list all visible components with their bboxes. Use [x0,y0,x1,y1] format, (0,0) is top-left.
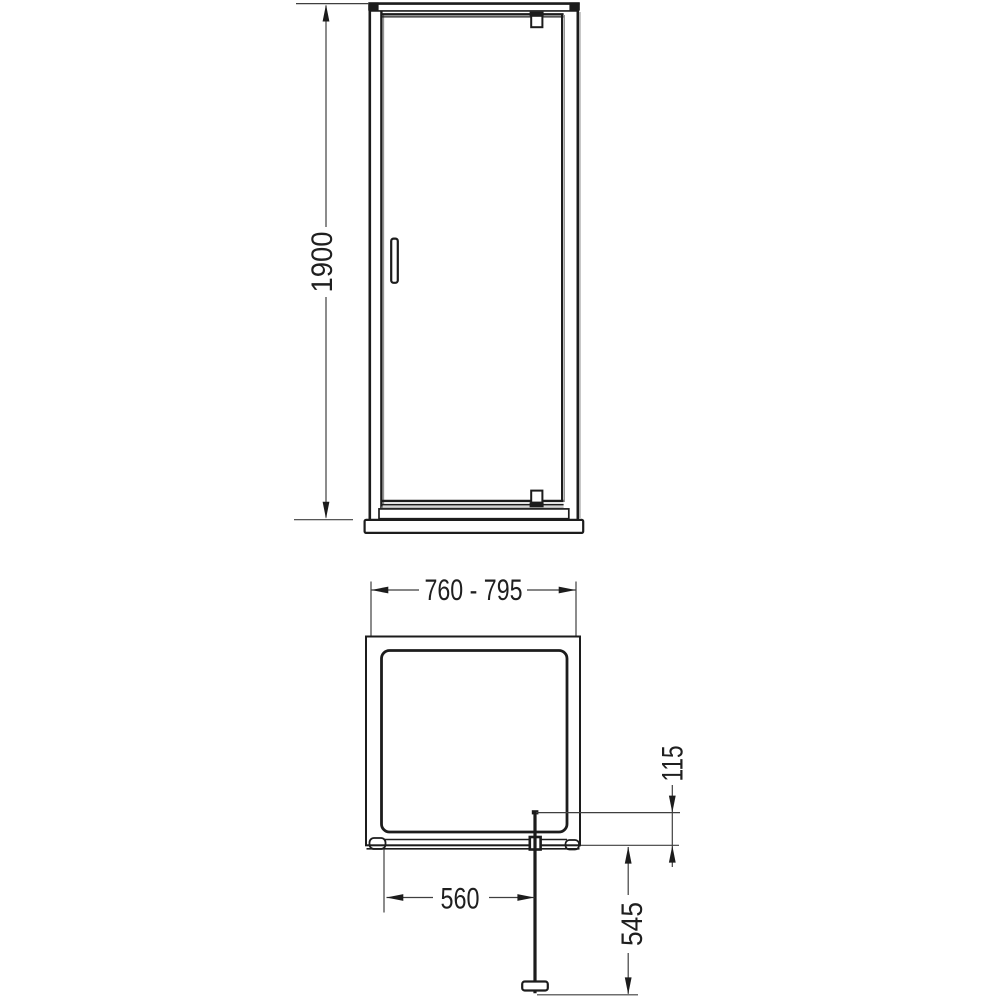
arrow-left [386,894,403,901]
dim-label-pivot-inset: 115 [657,746,690,782]
arrow-left [371,587,388,594]
door-handle [391,239,398,283]
drawing-canvas: 1900 760 - 795 115 [0,0,1000,1000]
shower-tray-elevation [365,520,584,533]
arrow-right [559,587,576,594]
arrow-down [669,796,676,813]
top-pivot-hinge [531,16,542,27]
dim-label-door-projection: 545 [616,902,649,946]
dim-label-overall-height: 1900 [306,232,339,293]
plan-view [366,637,580,994]
technical-drawing: 1900 760 - 795 115 [0,0,1000,1000]
arrow-up [625,847,632,864]
bottom-frame-bar [379,509,569,519]
tray-inner-outline [382,651,568,833]
dimension-overall-height: 1900 [294,4,369,520]
front-elevation-view [365,2,584,533]
bottom-hinge-cap [530,502,544,507]
dim-label-door-glass-width: 560 [441,883,480,916]
dimension-door-projection: 545 [537,847,649,995]
dimension-door-glass-width: 560 [384,850,535,916]
arrow-down [625,977,632,994]
plan-door-handle [522,982,548,991]
arrow-right [517,894,534,901]
dimension-width-range: 760 - 795 [371,574,576,636]
dim-label-width-range: 760 - 795 [425,574,523,607]
arrow-up [323,5,330,22]
bottom-pivot-hinge [531,491,542,503]
arrow-up [669,846,676,863]
arrow-down [323,502,330,519]
